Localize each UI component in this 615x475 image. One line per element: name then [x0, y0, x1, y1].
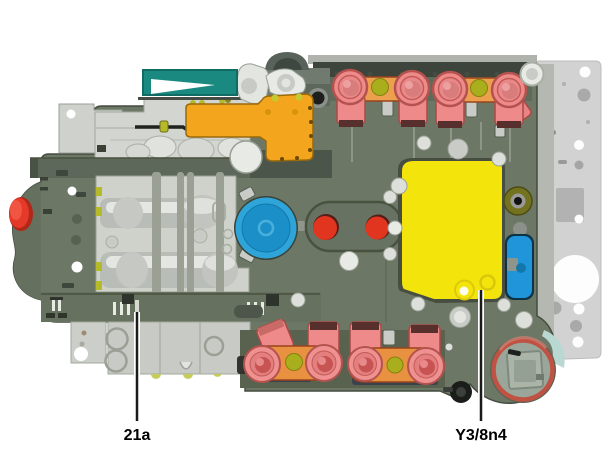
svg-text:Y3/8n4: Y3/8n4	[455, 427, 507, 444]
svg-text:21a: 21a	[124, 427, 151, 444]
